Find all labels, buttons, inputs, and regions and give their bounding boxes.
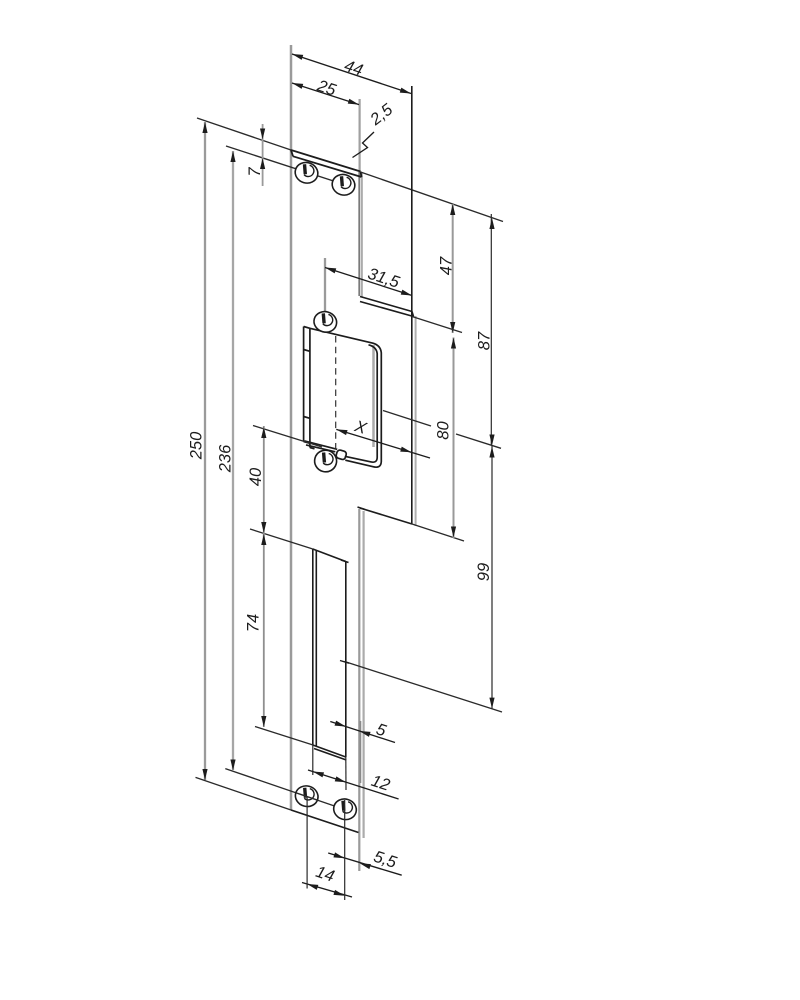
svg-text:99: 99 (475, 563, 493, 581)
svg-text:250: 250 (188, 431, 206, 460)
svg-text:X: X (352, 417, 370, 438)
svg-text:40: 40 (247, 467, 265, 486)
svg-text:5: 5 (374, 720, 389, 740)
svg-text:5,5: 5,5 (371, 848, 399, 872)
svg-text:236: 236 (217, 444, 235, 473)
svg-text:2,5: 2,5 (366, 100, 397, 129)
svg-text:87: 87 (476, 331, 494, 350)
svg-text:44: 44 (342, 57, 365, 80)
svg-text:74: 74 (245, 614, 263, 632)
svg-text:47: 47 (438, 256, 456, 275)
svg-text:31,5: 31,5 (365, 265, 402, 292)
svg-text:80: 80 (435, 421, 453, 440)
svg-text:7: 7 (246, 167, 264, 177)
svg-text:14: 14 (314, 863, 337, 886)
